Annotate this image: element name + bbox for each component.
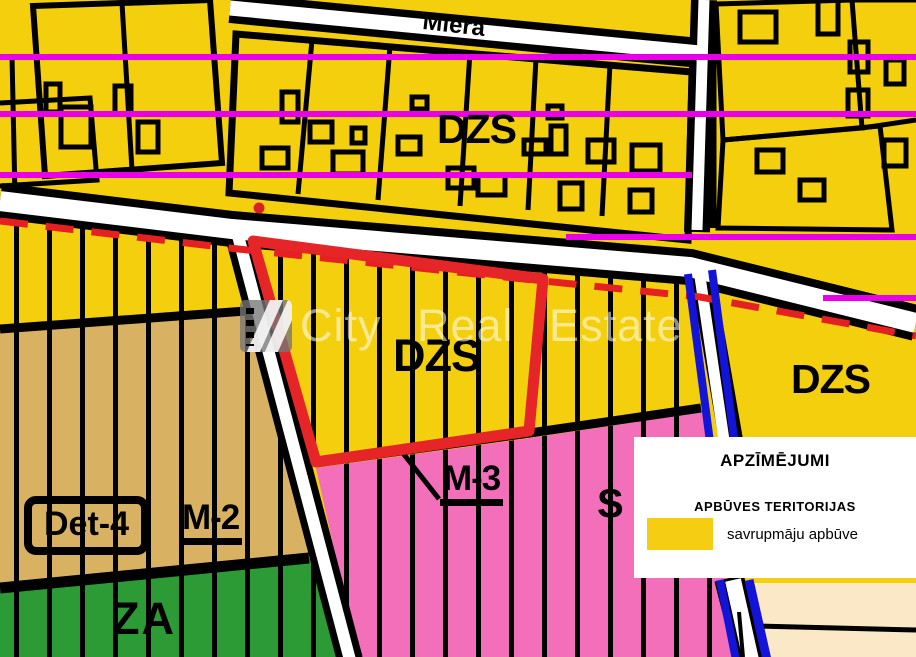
zone-beige xyxy=(745,583,916,657)
legend-section-title: APBŪVES TERITORIJAS xyxy=(634,499,916,514)
zone-label-dzs-center: DZS xyxy=(393,333,480,378)
zoning-map: City Real Estate Miera DZS DZS DZS Det-4… xyxy=(0,0,916,657)
red-dot-marker xyxy=(254,203,265,214)
legend-title: APZĪMĒJUMI xyxy=(634,451,916,471)
legend-item-label: savrupmāju apbūve xyxy=(727,526,858,543)
legend: APZĪMĒJUMI APBŪVES TERITORIJAS savrupmāj… xyxy=(634,437,916,578)
legend-swatch-yellow xyxy=(647,518,713,550)
zone-label-m-2: M-2 xyxy=(179,500,242,545)
zone-label-m-3: M-3 xyxy=(440,461,503,506)
zone-label-za: ZA xyxy=(112,596,176,641)
legend-item: savrupmāju apbūve xyxy=(634,518,916,550)
zone-label-det-4: Det-4 xyxy=(24,496,149,555)
zone-label-dzs-top: DZS xyxy=(437,109,516,150)
zone-label-s: S xyxy=(597,484,623,524)
zone-label-dzs-right: DZS xyxy=(791,359,870,400)
